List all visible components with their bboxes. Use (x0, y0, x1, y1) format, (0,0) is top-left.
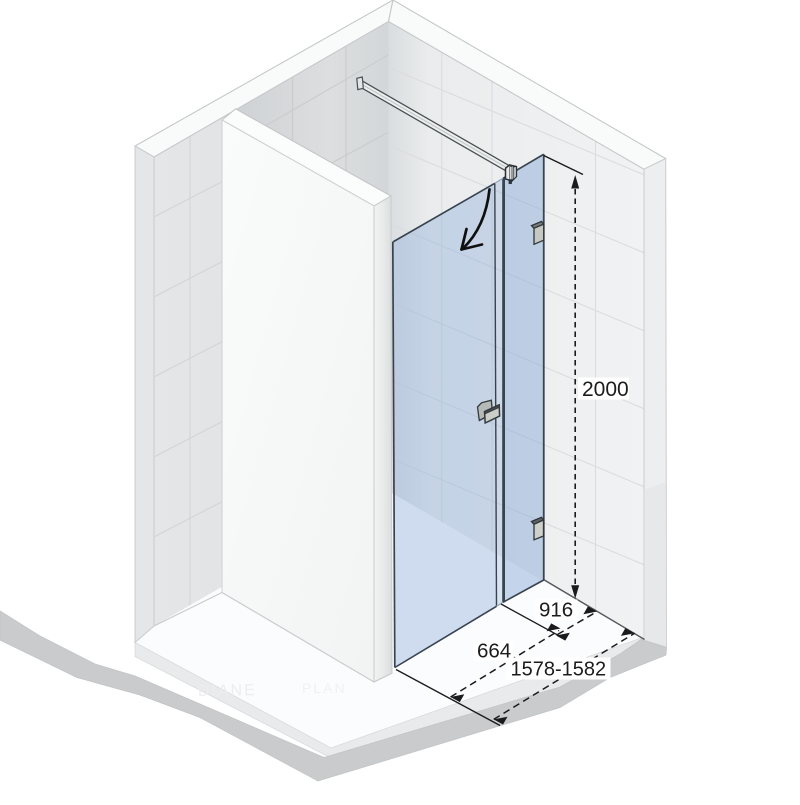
svg-text:1578-1582: 1578-1582 (511, 659, 607, 681)
svg-text:664: 664 (477, 640, 511, 663)
svg-text:PLAN: PLAN (302, 680, 347, 696)
svg-text:916: 916 (539, 599, 573, 622)
svg-text:2000: 2000 (582, 378, 629, 401)
svg-text:DIANE: DIANE (198, 682, 257, 700)
